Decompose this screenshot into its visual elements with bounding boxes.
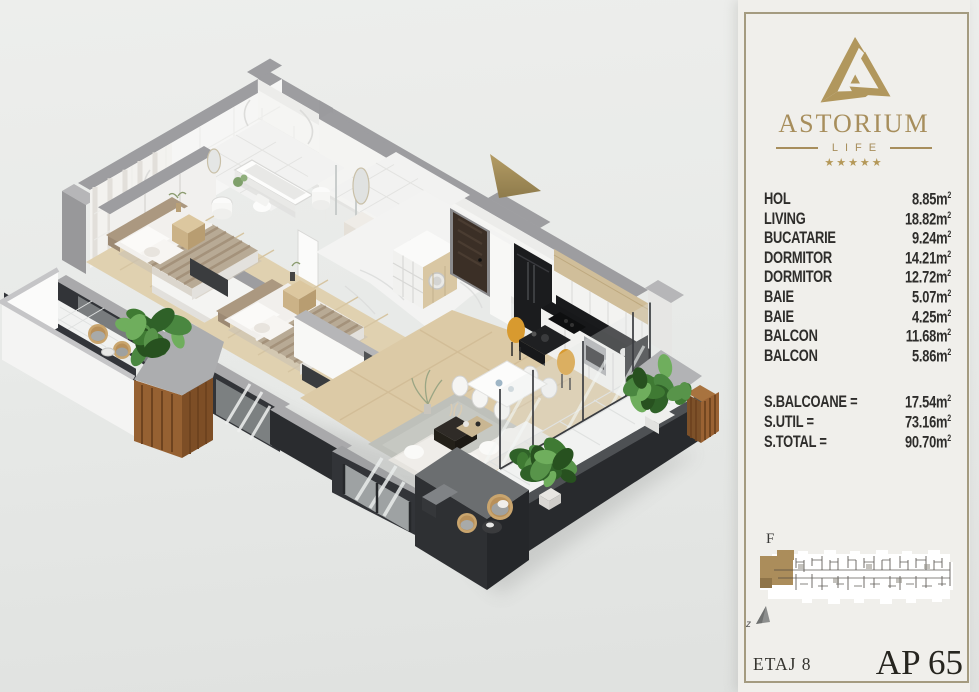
svg-text:z: z	[745, 619, 751, 628]
